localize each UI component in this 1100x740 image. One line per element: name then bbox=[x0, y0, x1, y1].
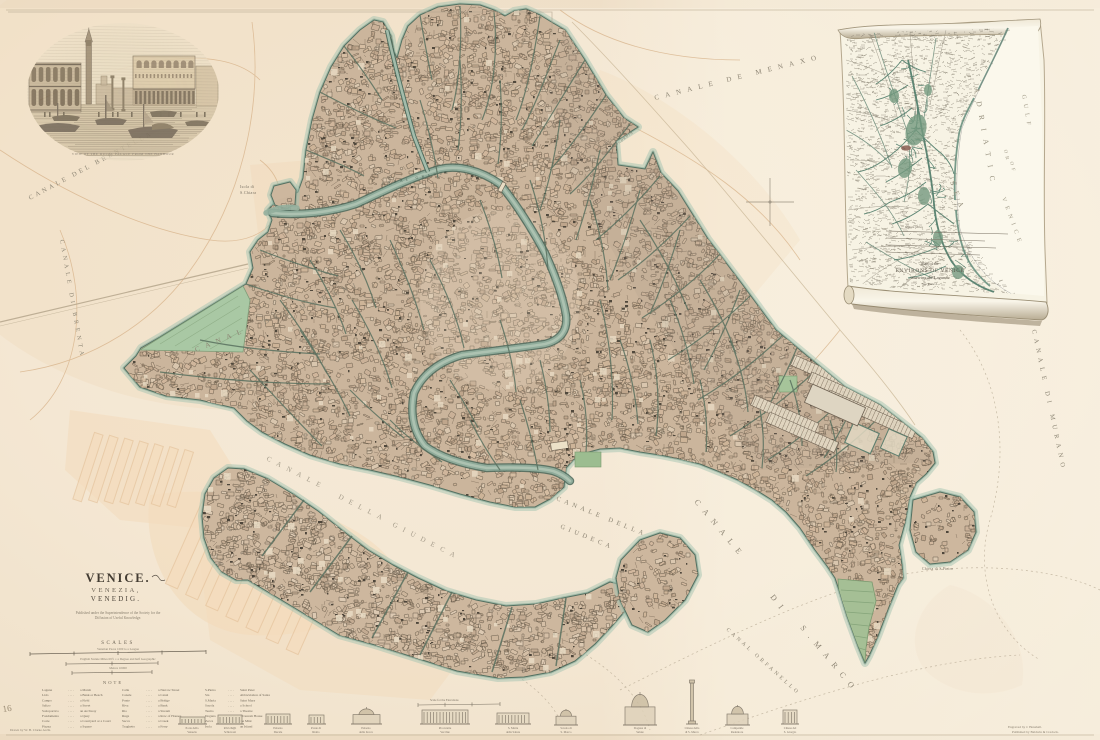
svg-text:. . . .: . . . . bbox=[68, 704, 74, 708]
svg-text:a Square: a Square bbox=[80, 724, 92, 728]
svg-text:Diffusion of Useful Knowledge.: Diffusion of Useful Knowledge. bbox=[95, 616, 142, 620]
svg-text:. . . .: . . . . bbox=[68, 719, 74, 723]
svg-text:an Island: an Island bbox=[240, 724, 253, 728]
svg-text:Sacca: Sacca bbox=[122, 719, 130, 723]
svg-text:Dogana: Dogana bbox=[205, 714, 216, 718]
svg-text:Redentore: Redentore bbox=[731, 730, 744, 734]
svg-text:a Custom House: a Custom House bbox=[240, 714, 263, 718]
svg-text:a Stream: a Stream bbox=[158, 709, 170, 713]
svg-text:Drawn by W. B. Clarke Archt.: Drawn by W. B. Clarke Archt. bbox=[10, 728, 51, 732]
svg-text:. . . .: . . . . bbox=[68, 724, 74, 728]
svg-text:Metres 10000: Metres 10000 bbox=[109, 666, 127, 670]
svg-text:Teatro: Teatro bbox=[205, 709, 214, 713]
svg-text:Canale: Canale bbox=[122, 693, 132, 697]
svg-text:. . . .: . . . . bbox=[228, 693, 234, 697]
svg-text:a Narrow Street: a Narrow Street bbox=[158, 688, 180, 692]
svg-text:S.Pietro: S.Pietro bbox=[205, 688, 216, 692]
svg-text:an Archway: an Archway bbox=[80, 709, 97, 713]
svg-text:Lido: Lido bbox=[42, 693, 49, 697]
svg-text:a Courtyard or a Court: a Courtyard or a Court bbox=[80, 719, 111, 723]
svg-text:VENEZIA,: VENEZIA, bbox=[91, 587, 140, 594]
svg-text:Published by Baldwin & Cradock: Published by Baldwin & Cradock. bbox=[1012, 730, 1059, 734]
svg-text:. . . .: . . . . bbox=[146, 719, 152, 723]
svg-text:a Theatre: a Theatre bbox=[240, 709, 253, 713]
svg-text:Rio: Rio bbox=[122, 709, 127, 713]
svg-text:Ponte: Ponte bbox=[122, 698, 130, 702]
svg-text:Zecca: Zecca bbox=[205, 719, 214, 723]
svg-text:See Plate 2.: See Plate 2. bbox=[922, 282, 938, 286]
svg-text:. . . .: . . . . bbox=[146, 693, 152, 697]
svg-text:VIEW OF THE DUCAL PALACE FROM: VIEW OF THE DUCAL PALACE FROM THE HARBOU… bbox=[72, 152, 175, 156]
svg-text:. . . .: . . . . bbox=[146, 724, 152, 728]
svg-text:Saint Mary: Saint Mary bbox=[240, 698, 255, 702]
svg-text:a Marsh: a Marsh bbox=[80, 688, 91, 692]
svg-text:a Bridge: a Bridge bbox=[158, 698, 170, 702]
svg-text:SCALES: SCALES bbox=[101, 641, 135, 646]
svg-text:Sta: Sta bbox=[205, 693, 210, 697]
svg-text:a Ferry: a Ferry bbox=[158, 724, 168, 728]
svg-text:. . . .: . . . . bbox=[228, 709, 234, 713]
svg-text:S. Giorgio: S. Giorgio bbox=[784, 730, 797, 734]
svg-text:Ruga: Ruga bbox=[122, 714, 130, 718]
svg-text:. . . .: . . . . bbox=[146, 688, 152, 692]
svg-text:a Row of Houses: a Row of Houses bbox=[158, 714, 182, 718]
svg-text:. . . .: . . . . bbox=[146, 704, 152, 708]
svg-text:della Zecca: della Zecca bbox=[359, 730, 373, 734]
svg-text:. . . .: . . . . bbox=[146, 709, 152, 713]
svg-text:Isola di: Isola di bbox=[240, 184, 255, 189]
svg-text:Engraved by J. Henshall.: Engraved by J. Henshall. bbox=[1008, 725, 1042, 729]
svg-text:S.Chiara: S.Chiara bbox=[240, 190, 256, 195]
svg-text:a Street: a Street bbox=[80, 704, 90, 708]
svg-text:. . . .: . . . . bbox=[68, 709, 74, 713]
svg-text:. . . .: . . . . bbox=[146, 698, 152, 702]
svg-text:di S. Marco: di S. Marco bbox=[685, 730, 700, 734]
svg-text:Schiavoni: Schiavoni bbox=[224, 730, 236, 734]
svg-text:. . . .: . . . . bbox=[146, 714, 152, 718]
svg-text:a Quay: a Quay bbox=[80, 714, 90, 718]
svg-text:a Field: a Field bbox=[80, 698, 90, 702]
svg-text:NOTE: NOTE bbox=[103, 680, 123, 685]
svg-text:. . . .: . . . . bbox=[68, 688, 74, 692]
svg-text:Saint Peter: Saint Peter bbox=[240, 688, 256, 692]
svg-text:. . . .: . . . . bbox=[228, 704, 234, 708]
svg-text:Statute Miles: Statute Miles bbox=[905, 225, 924, 229]
svg-text:Traghetto: Traghetto bbox=[122, 724, 135, 728]
svg-text:English Statute Miles 69½ = a: English Statute Miles 69½ = a Degree and… bbox=[80, 657, 156, 661]
svg-text:Venezia: Venezia bbox=[187, 730, 197, 734]
svg-text:Ducale: Ducale bbox=[274, 730, 283, 734]
svg-text:. . . .: . . . . bbox=[228, 698, 234, 702]
svg-text:a Bank: a Bank bbox=[158, 704, 168, 708]
svg-text:Scale for the Elevations: Scale for the Elevations bbox=[430, 698, 459, 702]
svg-text:Published under the Superinten: Published under the Superintendence of t… bbox=[76, 611, 161, 615]
svg-text:Riva: Riva bbox=[122, 704, 129, 708]
svg-text:. . . .: . . . . bbox=[228, 688, 234, 692]
svg-text:Vecchie: Vecchie bbox=[440, 730, 450, 734]
svg-text:a Bank or Beach: a Bank or Beach bbox=[80, 693, 103, 697]
svg-text:Laguna: Laguna bbox=[42, 688, 53, 692]
svg-text:della Salute: della Salute bbox=[506, 730, 521, 734]
svg-text:Venetian Paces 1000 to a Leagu: Venetian Paces 1000 to a League bbox=[97, 647, 140, 651]
svg-text:S.Maria: S.Maria bbox=[205, 698, 216, 702]
svg-text:S. Marco: S. Marco bbox=[561, 730, 572, 734]
svg-text:Calle: Calle bbox=[122, 688, 130, 692]
svg-text:Sottoportico: Sottoportico bbox=[42, 709, 59, 713]
svg-text:Campo: Campo bbox=[42, 698, 52, 702]
svg-text:Scuola: Scuola bbox=[205, 704, 215, 708]
svg-text:Rialto: Rialto bbox=[312, 730, 320, 734]
svg-text:Plan of the: Plan of the bbox=[921, 261, 939, 266]
svg-text:Fondamenta: Fondamenta bbox=[42, 714, 59, 718]
svg-text:VENICE.: VENICE. bbox=[85, 571, 150, 585]
svg-text:Salizo: Salizo bbox=[42, 704, 51, 708]
svg-text:Abbreviation of Santa: Abbreviation of Santa bbox=[240, 693, 270, 697]
svg-text:a Canal: a Canal bbox=[158, 693, 168, 697]
svg-text:Shewing the Lagunes: Shewing the Lagunes bbox=[911, 275, 949, 280]
svg-text:. . . .: . . . . bbox=[68, 714, 74, 718]
svg-text:Isola: Isola bbox=[205, 724, 212, 728]
svg-text:. . . .: . . . . bbox=[68, 693, 74, 697]
svg-text:a Creek: a Creek bbox=[158, 719, 169, 723]
svg-text:a School: a School bbox=[240, 704, 252, 708]
svg-text:Corte: Corte bbox=[42, 719, 50, 723]
svg-text:Chiesa di S.Pietro: Chiesa di S.Pietro bbox=[922, 567, 953, 571]
svg-text:Salute: Salute bbox=[636, 730, 644, 734]
svg-text:VENEDIG.: VENEDIG. bbox=[91, 595, 141, 603]
svg-text:. . . .: . . . . bbox=[68, 698, 74, 702]
svg-text:ENVIRONS OF VENICE: ENVIRONS OF VENICE bbox=[895, 268, 964, 274]
